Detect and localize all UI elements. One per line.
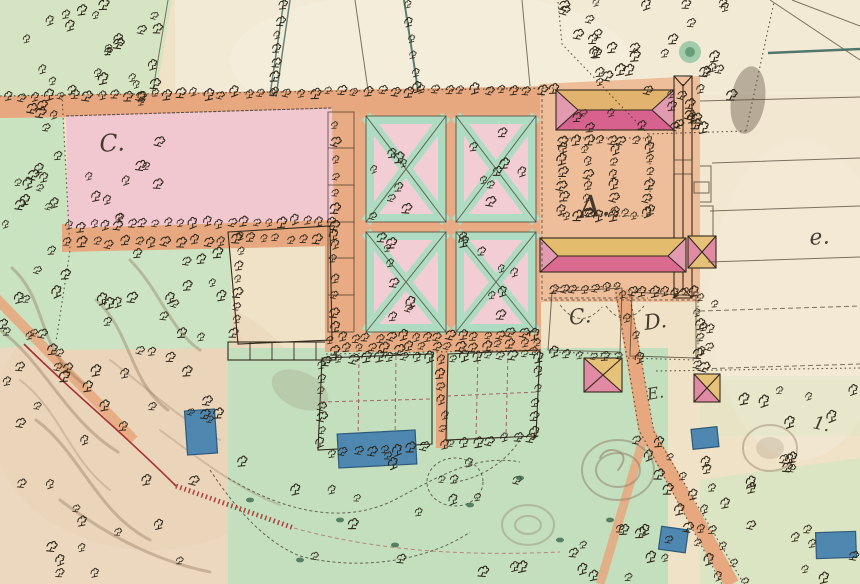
park-below-meadow (56, 248, 232, 350)
parcel-c-upper (66, 108, 334, 228)
pond (691, 427, 719, 450)
woodland-top-left (0, 0, 172, 96)
stable-building (584, 358, 622, 392)
label-yard-c: C. (567, 303, 592, 330)
label-manor-a: A. (574, 188, 612, 226)
pond (185, 409, 218, 455)
estate-map-canvas: C. A. C. D. E. e. 1. (0, 0, 860, 584)
corner-pavilion (688, 236, 716, 268)
parterre-quadrant (366, 232, 446, 332)
parterre-quadrant (366, 116, 446, 222)
label-stable-e: E. (644, 382, 665, 404)
parterre-quadrant (456, 232, 536, 332)
label-field-e: e. (808, 224, 830, 251)
manor-south-building (540, 238, 686, 272)
pond (658, 526, 688, 553)
barn-building (694, 374, 720, 402)
label-parcel-c-upper: C. (98, 128, 125, 158)
parterre-quadrant (456, 116, 536, 222)
manor-north-building (556, 90, 674, 130)
label-yard-d: D. (641, 308, 668, 335)
estate-map: C. A. C. D. E. e. 1. (0, 0, 860, 584)
